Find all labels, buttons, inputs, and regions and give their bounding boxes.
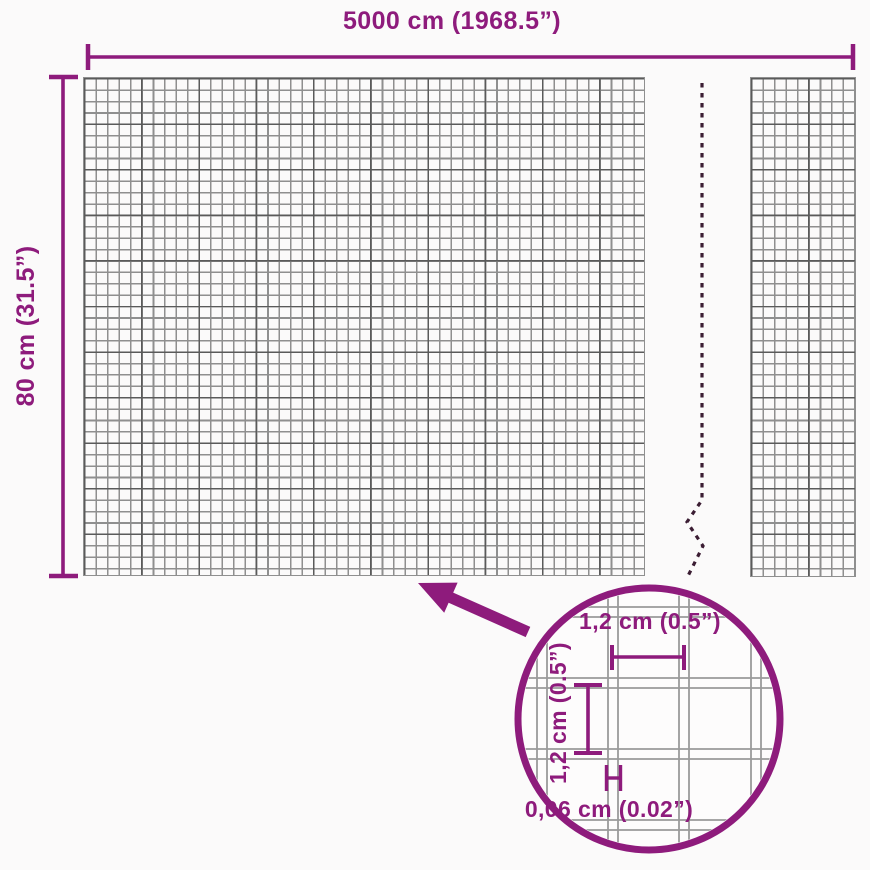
product-dimension-diagram: 5000 cm (1968.5”) 80 cm (31.5”) 1,2 cm (…	[0, 0, 870, 870]
wire-thickness-label: 0,06 cm (0.02”)	[489, 796, 729, 823]
width-dimension-label: 5000 cm (1968.5”)	[292, 7, 612, 36]
cell-height-label: 1,2 cm (0.5”)	[545, 625, 573, 801]
height-dimension-line	[49, 77, 78, 576]
width-dimension-line	[88, 44, 853, 70]
diagram-overlay	[0, 0, 870, 870]
zoom-arrow-icon	[418, 583, 530, 638]
height-dimension-label: 80 cm (31.5”)	[12, 238, 42, 414]
break-line-icon	[687, 83, 703, 576]
